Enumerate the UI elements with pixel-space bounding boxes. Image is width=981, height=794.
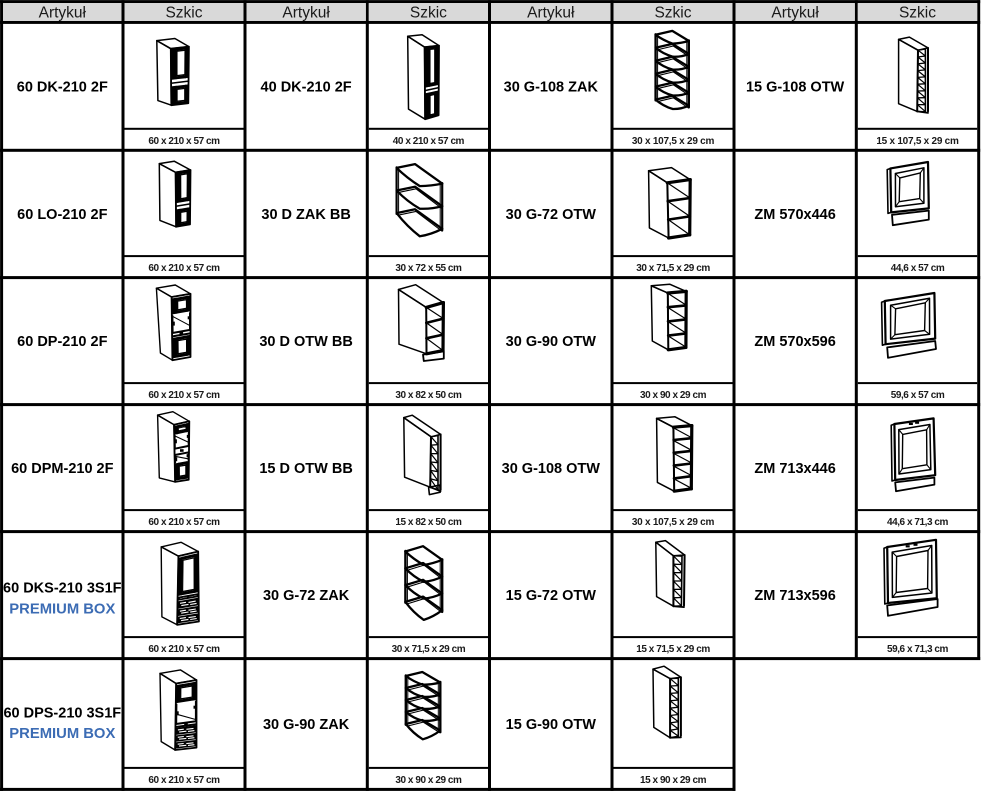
- svg-text:30 x 82 x 50 cm: 30 x 82 x 50 cm: [395, 390, 462, 401]
- svg-text:60 x 210 x 57 cm: 60 x 210 x 57 cm: [148, 775, 220, 786]
- svg-text:60 x 210 x 57 cm: 60 x 210 x 57 cm: [148, 644, 220, 655]
- svg-text:30 x 107,5 x 29 cm: 30 x 107,5 x 29 cm: [632, 517, 715, 528]
- svg-text:PREMIUM BOX: PREMIUM BOX: [9, 602, 115, 618]
- svg-text:60 x 210 x 57 cm: 60 x 210 x 57 cm: [148, 390, 220, 401]
- svg-text:60 DPM-210 2F: 60 DPM-210 2F: [11, 461, 113, 477]
- svg-text:15 x 82 x 50 cm: 15 x 82 x 50 cm: [395, 517, 462, 528]
- svg-text:30 G-72 ZAK: 30 G-72 ZAK: [263, 588, 350, 604]
- svg-text:Szkic: Szkic: [654, 4, 691, 21]
- svg-text:30 G-90 OTW: 30 G-90 OTW: [506, 334, 597, 350]
- svg-text:30 x 90 x 29 cm: 30 x 90 x 29 cm: [640, 390, 707, 401]
- svg-text:30 x 90 x 29 cm: 30 x 90 x 29 cm: [395, 775, 462, 786]
- svg-text:40 x 210 x 57 cm: 40 x 210 x 57 cm: [393, 136, 465, 147]
- svg-text:15 D OTW BB: 15 D OTW BB: [259, 461, 352, 477]
- svg-text:60 x 210 x 57 cm: 60 x 210 x 57 cm: [148, 517, 220, 528]
- svg-text:30 G-90 ZAK: 30 G-90 ZAK: [263, 717, 350, 733]
- svg-text:60 DK-210 2F: 60 DK-210 2F: [17, 79, 108, 95]
- svg-text:59,6 x 71,3 cm: 59,6 x 71,3 cm: [887, 644, 949, 655]
- svg-text:Szkic: Szkic: [410, 4, 447, 21]
- svg-text:PREMIUM BOX: PREMIUM BOX: [9, 726, 115, 742]
- svg-text:ZM 713x596: ZM 713x596: [754, 588, 835, 604]
- svg-text:Szkic: Szkic: [165, 4, 202, 21]
- svg-text:Artykuł: Artykuł: [39, 4, 87, 21]
- svg-text:30 x 107,5 x 29 cm: 30 x 107,5 x 29 cm: [632, 136, 715, 147]
- svg-text:30 G-108 OTW: 30 G-108 OTW: [502, 461, 601, 477]
- svg-text:59,6 x 57 cm: 59,6 x 57 cm: [891, 390, 945, 401]
- svg-text:15 G-72 OTW: 15 G-72 OTW: [506, 588, 597, 604]
- svg-text:30 D ZAK BB: 30 D ZAK BB: [261, 207, 350, 223]
- svg-text:40 DK-210 2F: 40 DK-210 2F: [261, 79, 352, 95]
- svg-text:60 LO-210 2F: 60 LO-210 2F: [17, 207, 107, 223]
- svg-text:60 x 210 x 57 cm: 60 x 210 x 57 cm: [148, 263, 220, 274]
- svg-text:30 x 71,5 x 29 cm: 30 x 71,5 x 29 cm: [636, 263, 710, 274]
- svg-text:44,6 x 57 cm: 44,6 x 57 cm: [891, 263, 945, 274]
- svg-text:30 D OTW BB: 30 D OTW BB: [259, 334, 352, 350]
- svg-text:ZM 713x446: ZM 713x446: [754, 461, 835, 477]
- svg-text:44,6 x 71,3 cm: 44,6 x 71,3 cm: [887, 517, 949, 528]
- svg-text:15 G-90 OTW: 15 G-90 OTW: [506, 717, 597, 733]
- svg-text:15 G-108 OTW: 15 G-108 OTW: [746, 79, 845, 95]
- svg-text:60 x 210 x 57 cm: 60 x 210 x 57 cm: [148, 136, 220, 147]
- svg-text:Artykuł: Artykuł: [527, 4, 575, 21]
- svg-text:30 G-108 ZAK: 30 G-108 ZAK: [504, 79, 599, 95]
- svg-text:60 DP-210 2F: 60 DP-210 2F: [17, 334, 107, 350]
- svg-text:15 x 71,5 x 29 cm: 15 x 71,5 x 29 cm: [636, 644, 710, 655]
- svg-text:15 x 90 x 29 cm: 15 x 90 x 29 cm: [640, 775, 707, 786]
- svg-text:Artykuł: Artykuł: [771, 4, 819, 21]
- svg-text:ZM 570x596: ZM 570x596: [754, 334, 835, 350]
- svg-text:Szkic: Szkic: [899, 4, 936, 21]
- svg-text:60 DPS-210 3S1F: 60 DPS-210 3S1F: [3, 706, 121, 722]
- svg-text:60 DKS-210 3S1F: 60 DKS-210 3S1F: [3, 581, 122, 597]
- svg-text:ZM 570x446: ZM 570x446: [754, 207, 835, 223]
- svg-text:15 x 107,5 x 29 cm: 15 x 107,5 x 29 cm: [876, 136, 959, 147]
- svg-text:Artykuł: Artykuł: [282, 4, 330, 21]
- svg-text:30 G-72 OTW: 30 G-72 OTW: [506, 207, 597, 223]
- svg-text:30 x 72 x 55 cm: 30 x 72 x 55 cm: [395, 263, 462, 274]
- svg-text:30 x 71,5 x 29 cm: 30 x 71,5 x 29 cm: [392, 644, 466, 655]
